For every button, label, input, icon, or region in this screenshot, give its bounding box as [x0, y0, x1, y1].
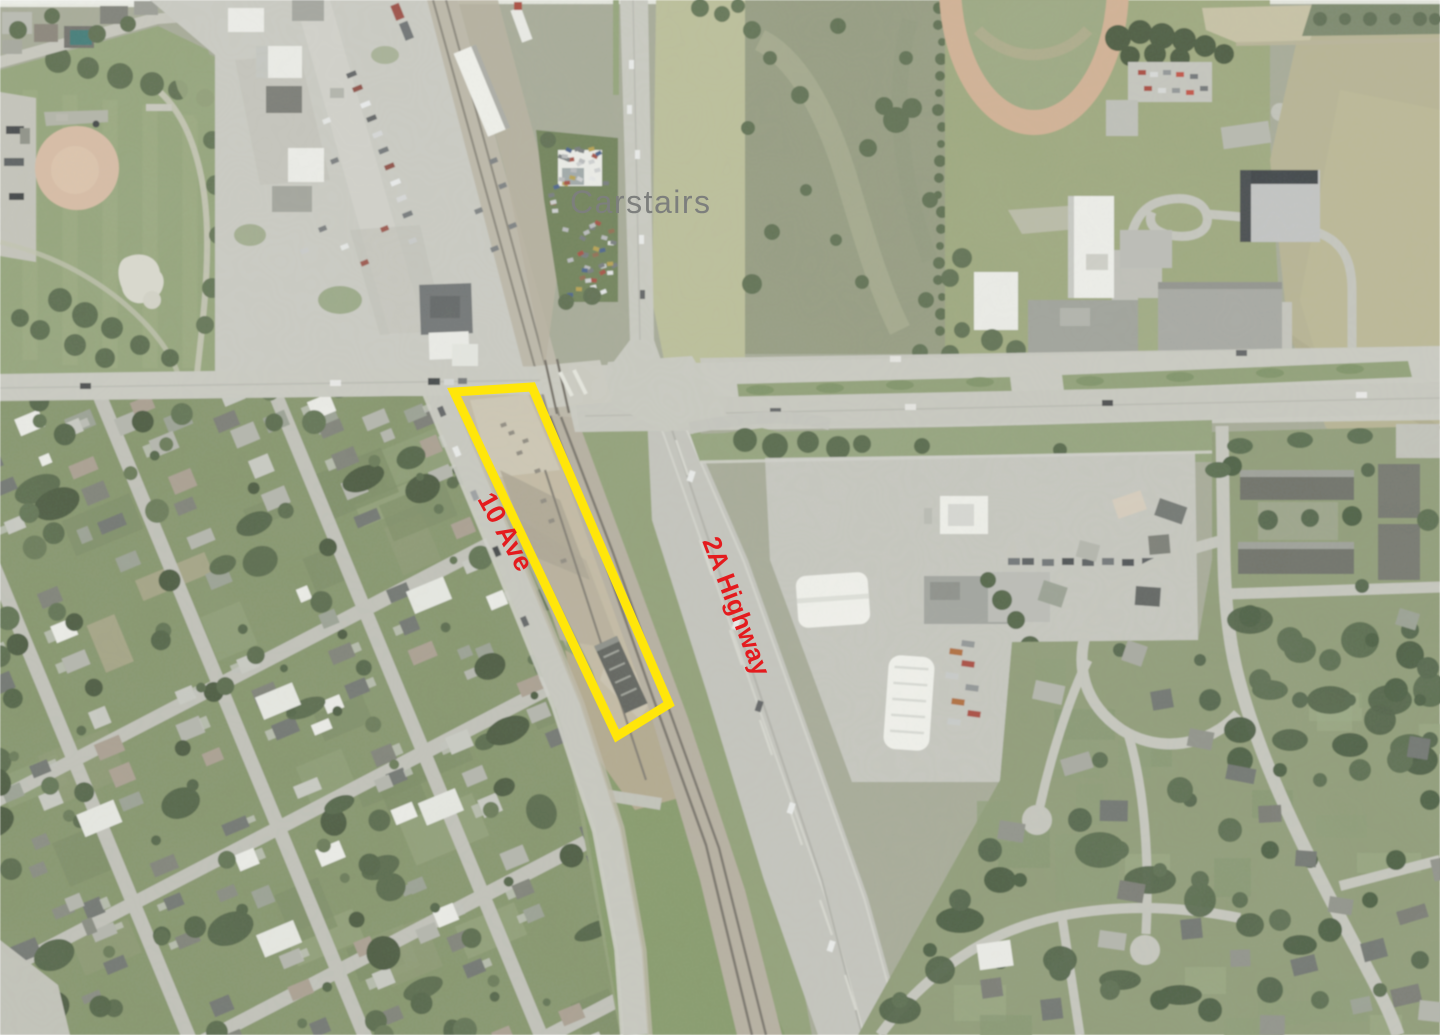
svg-text:Carstairs: Carstairs — [570, 184, 712, 220]
